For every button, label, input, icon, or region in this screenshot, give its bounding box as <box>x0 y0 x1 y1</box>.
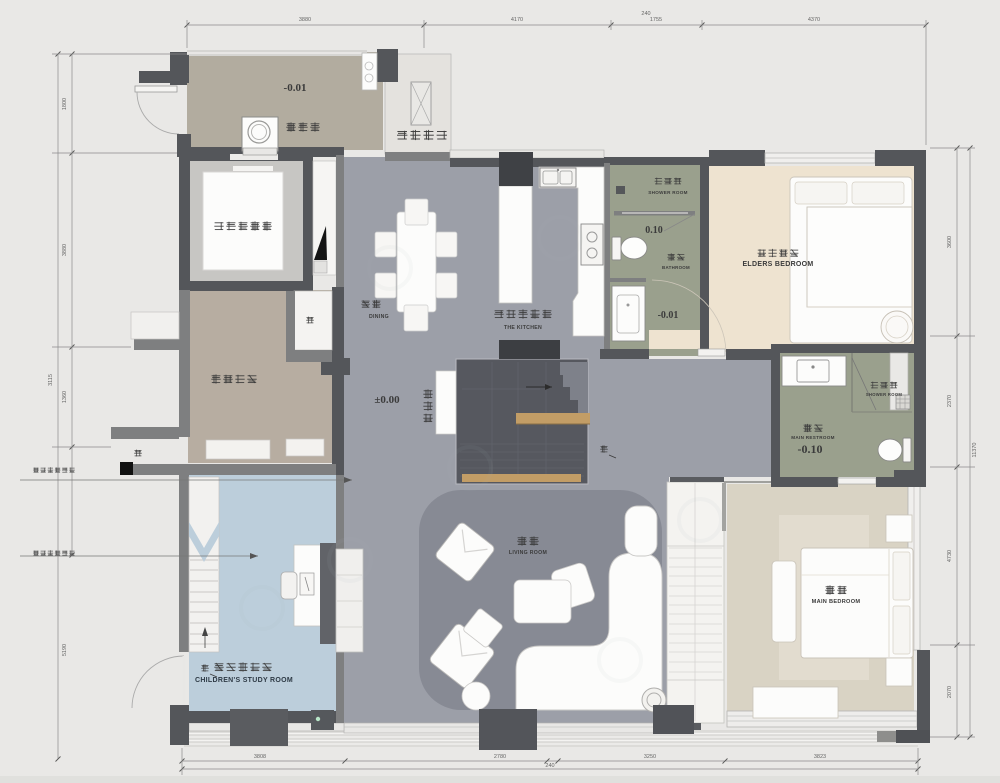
svg-text:3600: 3600 <box>947 236 953 248</box>
svg-text:0.10: 0.10 <box>645 225 663 236</box>
svg-text:11370: 11370 <box>972 443 978 458</box>
svg-text:4370: 4370 <box>808 17 820 23</box>
svg-text:LIVING ROOM: LIVING ROOM <box>509 550 547 556</box>
svg-text:SHOWER ROOM: SHOWER ROOM <box>648 190 688 195</box>
svg-text:5190: 5190 <box>62 644 68 656</box>
svg-text:-0.01: -0.01 <box>658 310 679 321</box>
svg-text:-0.10: -0.10 <box>798 442 823 456</box>
svg-text:2370: 2370 <box>947 395 953 407</box>
svg-text:CHILDREN'S STUDY ROOM: CHILDREN'S STUDY ROOM <box>195 677 293 684</box>
svg-text:THE KITCHEN: THE KITCHEN <box>504 325 542 331</box>
svg-text:3115: 3115 <box>48 374 54 386</box>
svg-text:4170: 4170 <box>511 17 523 23</box>
svg-text:3808: 3808 <box>254 754 266 760</box>
svg-text:2780: 2780 <box>494 754 506 760</box>
svg-text:240: 240 <box>545 763 554 769</box>
svg-text:ELDERS BEDROOM: ELDERS BEDROOM <box>742 261 813 268</box>
svg-text:SHOWER ROOM: SHOWER ROOM <box>866 392 903 397</box>
svg-text:2070: 2070 <box>947 686 953 698</box>
svg-text:DINING: DINING <box>369 314 389 320</box>
svg-text:3880: 3880 <box>299 17 311 23</box>
svg-text:±0.00: ±0.00 <box>374 394 400 406</box>
svg-text:-0.01: -0.01 <box>284 82 307 94</box>
svg-text:1800: 1800 <box>62 98 68 110</box>
svg-text:MAIN RESTROOM: MAIN RESTROOM <box>791 435 834 440</box>
svg-text:4730: 4730 <box>947 550 953 562</box>
svg-text:MAIN BEDROOM: MAIN BEDROOM <box>812 599 861 605</box>
svg-text:3250: 3250 <box>644 754 656 760</box>
svg-text:1755: 1755 <box>650 17 662 23</box>
svg-text:1360: 1360 <box>62 391 68 403</box>
svg-text:3880: 3880 <box>62 244 68 256</box>
svg-text:BATHROOM: BATHROOM <box>662 265 690 270</box>
svg-text:240: 240 <box>641 11 650 17</box>
svg-text:3823: 3823 <box>814 754 826 760</box>
